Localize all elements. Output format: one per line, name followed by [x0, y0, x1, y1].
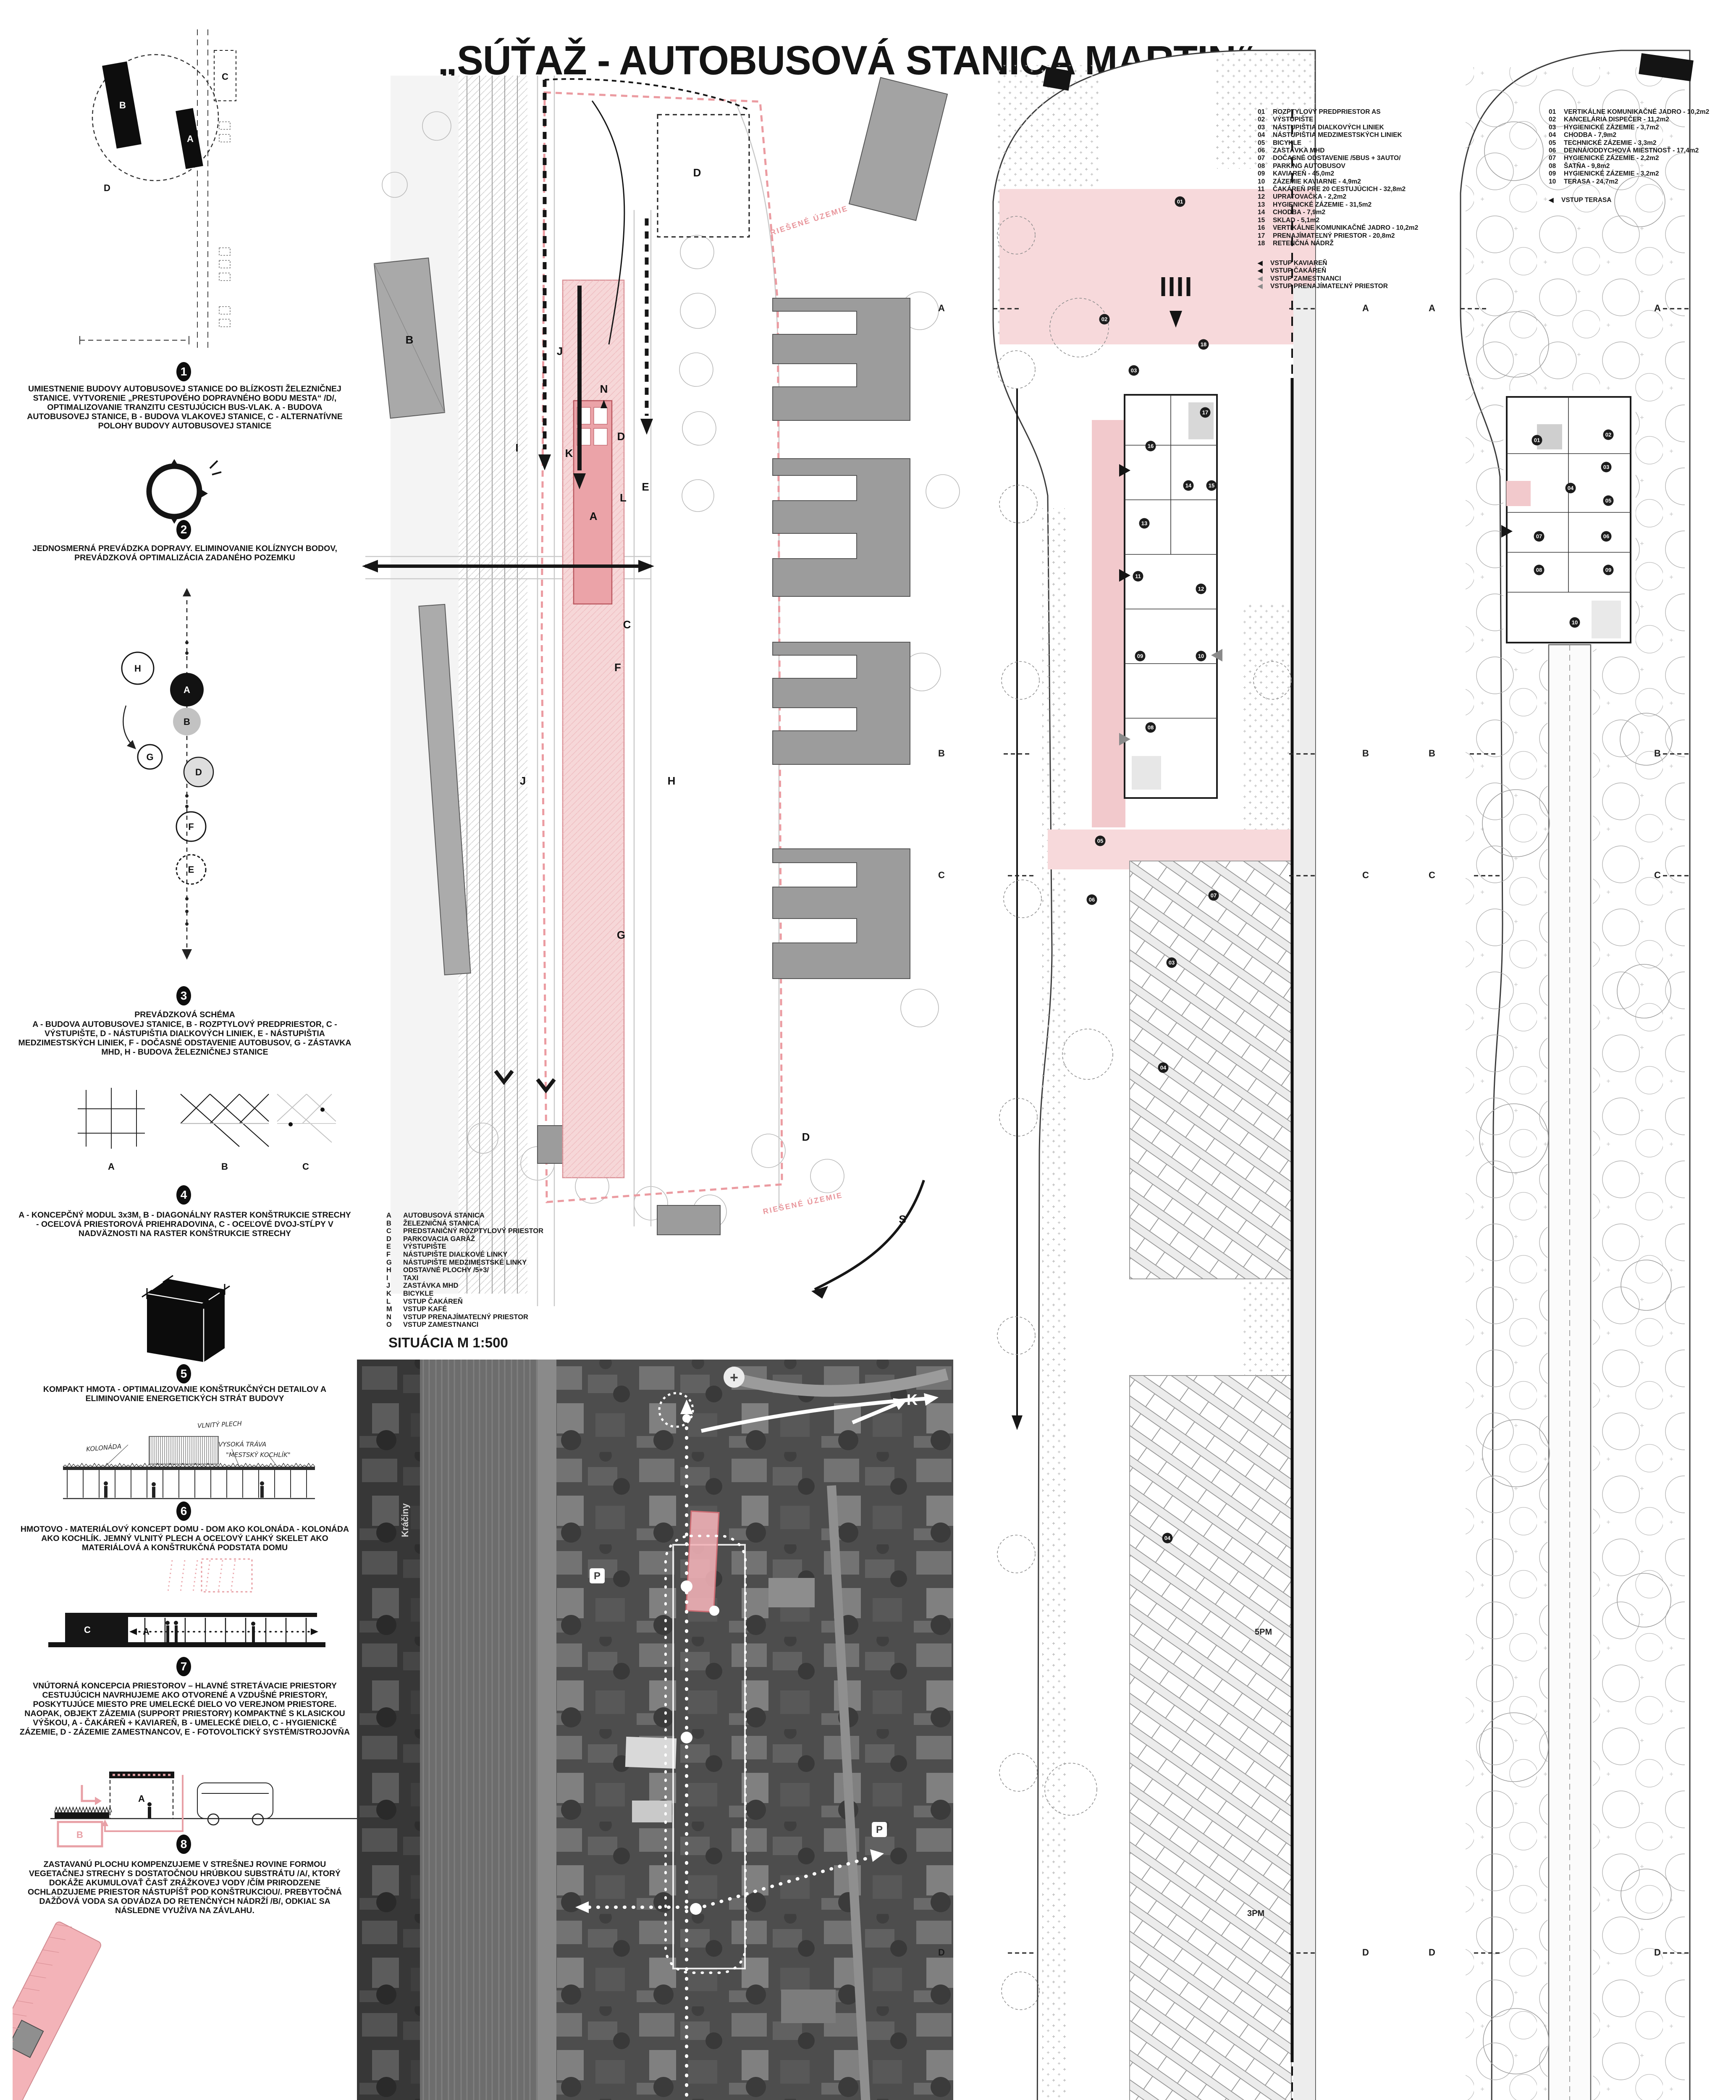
- legend-key: D: [386, 1235, 403, 1243]
- legend-value: DENNÁ/ODDYCHOVÁ MIESTNOSŤ - 17,4m2: [1564, 147, 1699, 155]
- concept-text-5: KOMPAKT HMOTA - OPTIMALIZOVANIE KONŠTRUK…: [17, 1385, 353, 1403]
- svg-text:08: 08: [1536, 567, 1542, 573]
- plan1-legend-row: 08PARKING AUTOBUSOV: [1258, 163, 1418, 170]
- plan-letter: L: [620, 491, 627, 504]
- svg-text:G: G: [146, 752, 153, 762]
- section-marker-B: B: [938, 748, 945, 759]
- legend-key: I: [386, 1274, 403, 1282]
- legend-key: H: [386, 1266, 403, 1274]
- svg-text:D: D: [195, 767, 202, 777]
- legend-value: PARKING AUTOBUSOV: [1273, 163, 1345, 170]
- legend-value: CHODBA - 7,9m2: [1564, 131, 1616, 139]
- plan1-legend-row: 02VÝSTUPIŠTE: [1258, 116, 1418, 123]
- plan2-legend-row: 03HYGIENICKÉ ZÁZEMIE - 3,7m2: [1549, 124, 1709, 131]
- plan-letter: N: [600, 383, 608, 395]
- legend-value: HYGIENICKÉ ZÁZEMIE - 3,7m2: [1564, 124, 1659, 131]
- site-plan-drawing: D BIJKDEALCFJGHDSN: [357, 50, 966, 1357]
- section-marker-A: A: [1654, 303, 1661, 314]
- site-legend-row: CPREDSTANIČNÝ ROZPTYLOVÝ PRIESTOR: [386, 1227, 543, 1235]
- svg-text:P: P: [876, 1824, 883, 1835]
- svg-text:01: 01: [1177, 199, 1183, 205]
- legend-value: RETENČNÁ NÁDRŽ: [1273, 240, 1334, 247]
- svg-text:D: D: [693, 166, 701, 179]
- legend-key: 05: [1549, 139, 1564, 147]
- svg-text:16: 16: [1148, 443, 1154, 449]
- site-legend-row: HODSTAVNÉ PLOCHY /5+3/: [386, 1266, 543, 1274]
- plan-letter: I: [515, 441, 518, 454]
- plan-letter: B: [406, 333, 414, 346]
- plan2-legend-row: 08ŠATŇA - 9,8m2: [1549, 163, 1709, 170]
- legend-key: 12: [1258, 193, 1273, 201]
- section-marker-A: A: [1362, 303, 1369, 314]
- plan1-legend-row: 11ČAKÁREŇ PRE 20 CESTUJÚCICH - 32,8m2: [1258, 186, 1418, 193]
- plan1-entrance-row: ◀VSTUP ČAKÁREŇ: [1258, 267, 1388, 275]
- svg-text:03: 03: [1603, 464, 1609, 470]
- site-legend-row: NVSTUP PRENAJÍMATEĽNÝ PRIESTOR: [386, 1313, 543, 1321]
- legend-value: VSTUP ZAMESTNANCI: [1270, 275, 1341, 283]
- svg-text:E: E: [188, 864, 194, 875]
- svg-text:14: 14: [1185, 483, 1192, 489]
- plan-letter: D: [617, 430, 625, 443]
- plan1-note-3pm: 3PM: [1247, 1909, 1264, 1918]
- site-plan-title: SITUÁCIA M 1:500: [388, 1335, 508, 1351]
- legend-value: SKLAD - 5,1m2: [1273, 217, 1319, 224]
- concept-diagram-2: [126, 451, 227, 531]
- concept-text-6: HMOTOVO - MATERIÁLOVÝ KONCEPT DOMU - DOM…: [17, 1525, 353, 1552]
- legend-value: VERTIKÁLNE KOMUNIKAČNÉ JADRO - 10,2m2: [1273, 224, 1418, 232]
- legend-value: VÝSTUPIŠTE: [1273, 116, 1313, 123]
- legend-value: ZÁZEMIE KAVIARNE - 4,9m2: [1273, 178, 1361, 186]
- entrance-arrow-icon: ◀: [1258, 267, 1270, 275]
- plan-letter: J: [557, 345, 563, 357]
- site-legend-row: LVSTUP ČAKÁREŇ: [386, 1298, 543, 1306]
- svg-text:13: 13: [1141, 520, 1147, 527]
- site-legend-row: FNÁSTUPIŠTE DIAĽKOVÉ LINKY: [386, 1251, 543, 1259]
- legend-value: TERASA - 24,7m2: [1564, 178, 1618, 186]
- plan-letter: D: [802, 1131, 810, 1143]
- svg-text:P: P: [594, 1570, 601, 1582]
- site-legend-row: EVÝSTUPIŠTE: [386, 1243, 543, 1251]
- concept-number-2: 2: [176, 520, 191, 539]
- legend-key: E: [386, 1243, 403, 1251]
- aerial-photo: P P + K: [357, 1360, 953, 2100]
- site-legend-row: JZASTÁVKA MHD: [386, 1282, 543, 1290]
- svg-text:04: 04: [1568, 485, 1574, 491]
- svg-text:04: 04: [1164, 1535, 1171, 1541]
- legend-key: 03: [1258, 124, 1273, 131]
- legend-key: N: [386, 1313, 403, 1321]
- plan1-legend-row: 16VERTIKÁLNE KOMUNIKAČNÉ JADRO - 10,2m2: [1258, 224, 1418, 232]
- section-marker-B: B: [1362, 748, 1369, 759]
- legend-value: PRENAJÍMATEĽNÝ PRIESTOR - 20,8m2: [1273, 232, 1395, 240]
- concept-diagram-6: [42, 1420, 336, 1510]
- concept-text-7: VNÚTORNÁ KONCEPCIA PRIESTOROV – HLAVNÉ S…: [17, 1681, 353, 1737]
- svg-text:K: K: [907, 1391, 918, 1408]
- entrance-arrow-icon: ◀: [1258, 283, 1270, 290]
- svg-text:+: +: [730, 1370, 738, 1386]
- site-legend-row: DPARKOVACIA GARÁŽ: [386, 1235, 543, 1243]
- plan2-legend-row: 10TERASA - 24,7m2: [1549, 178, 1709, 186]
- svg-text:06: 06: [1603, 533, 1609, 540]
- legend-value: PARKOVACIA GARÁŽ: [403, 1235, 475, 1243]
- plan2-entrance-row: ◀VSTUP TERASA: [1549, 197, 1611, 204]
- legend-key: G: [386, 1259, 403, 1267]
- legend-key: 08: [1549, 163, 1564, 170]
- legend-key: 09: [1549, 170, 1564, 178]
- site-legend-row: OVSTUP ZAMESTNANCI: [386, 1321, 543, 1329]
- plan1-legend-row: 15SKLAD - 5,1m2: [1258, 217, 1418, 224]
- legend-value: VSTUP KAVIAREŇ: [1270, 260, 1327, 267]
- svg-text:D: D: [104, 183, 110, 193]
- concept-number-6: 6: [176, 1501, 191, 1521]
- legend-value: HYGIENICKÉ ZÁZEMIE - 3,2m2: [1564, 170, 1659, 178]
- site-legend-row: ITAXI: [386, 1274, 543, 1282]
- section-marker-D: D: [1362, 1947, 1369, 1958]
- section-marker-D: D: [938, 1947, 945, 1958]
- legend-value: DOČASNÉ ODSTAVENIE /5BUS + 3AUTO/: [1273, 155, 1400, 162]
- legend-key: 18: [1258, 240, 1273, 247]
- legend-key: O: [386, 1321, 403, 1329]
- section-marker-C: C: [1429, 870, 1435, 881]
- plan1-note-5pm: 5PM: [1255, 1627, 1272, 1637]
- legend-value: NÁSTUPIŠTIA DIAĽKOVÝCH LINIEK: [1273, 124, 1384, 131]
- legend-key: J: [386, 1282, 403, 1290]
- plan1-legend-row: 18RETENČNÁ NÁDRŽ: [1258, 240, 1418, 247]
- legend-key: L: [386, 1298, 403, 1306]
- plan1-entrances: ◀VSTUP KAVIAREŇ◀VSTUP ČAKÁREŇ◀VSTUP ZAME…: [1258, 260, 1388, 291]
- competition-board: „SÚŤAŽ - AUTOBUSOVÁ STANICA MARTIN“ B A …: [0, 0, 1736, 2100]
- svg-text:A: A: [108, 1161, 115, 1172]
- legend-value: TECHNICKÉ ZÁZEMIE - 3,3m2: [1564, 139, 1656, 147]
- svg-text:06: 06: [1089, 897, 1095, 903]
- plan-letter: E: [642, 480, 649, 493]
- svg-text:12: 12: [1198, 586, 1204, 592]
- svg-text:B: B: [221, 1161, 228, 1172]
- legend-value: VERTIKÁLNE KOMUNIKAČNÉ JADRO - 10,2m2: [1564, 108, 1709, 116]
- plan1-legend-row: 14CHODBA - 7,9m2: [1258, 209, 1418, 216]
- site-legend-row: GNÁSTUPIŠTE MEDZIMESTSKÉ LINKY: [386, 1259, 543, 1267]
- concept-text-3: A - BUDOVA AUTOBUSOVEJ STANICE, B - ROZP…: [17, 1020, 353, 1057]
- legend-value: VSTUP ZAMESTNANCI: [403, 1321, 478, 1329]
- legend-value: VSTUP TERASA: [1561, 197, 1611, 204]
- svg-text:A: A: [138, 1793, 145, 1804]
- legend-value: ŽELEZNIČNÁ STANICA: [403, 1220, 479, 1228]
- section-marker-A: A: [938, 303, 945, 314]
- legend-value: NÁSTUPIŠTE DIAĽKOVÉ LINKY: [403, 1251, 507, 1259]
- svg-text:C: C: [302, 1161, 309, 1172]
- plan2-legend: 01VERTIKÁLNE KOMUNIKAČNÉ JADRO - 10,2m20…: [1549, 108, 1709, 186]
- legend-value: ROZPTYLOVÝ PREDPRIESTOR AS: [1273, 108, 1381, 116]
- plan1-entrance-row: ◀VSTUP KAVIAREŇ: [1258, 260, 1388, 267]
- legend-value: NÁSTUPIŠTE MEDZIMESTSKÉ LINKY: [403, 1259, 527, 1267]
- svg-text:11: 11: [1135, 573, 1141, 580]
- legend-value: HYGIENICKÉ ZÁZEMIE - 31,5m2: [1273, 201, 1371, 209]
- concept-number-8: 8: [176, 1835, 191, 1854]
- svg-text:B: B: [119, 100, 126, 110]
- concept-text-4: A - KONCEPČNÝ MODUL 3x3M, B - DIAGONÁLNY…: [17, 1210, 353, 1238]
- svg-text:02: 02: [1605, 432, 1611, 438]
- svg-text:07: 07: [1536, 533, 1542, 540]
- section-marker-B: B: [1654, 748, 1661, 759]
- legend-value: ZASTÁVKA MHD: [1273, 147, 1324, 155]
- site-legend-row: AAUTOBUSOVÁ STANICA: [386, 1212, 543, 1220]
- concept-text-2: JEDNOSMERNÁ PREVÁDZKA DOPRAVY. ELIMINOVA…: [17, 544, 353, 562]
- plan1-entrance-row: ◀VSTUP ZAMESTNANCI: [1258, 275, 1388, 283]
- svg-text:08: 08: [1148, 724, 1154, 731]
- svg-text:F: F: [188, 822, 194, 832]
- legend-value: UPRATOVAČKA - 2,2m2: [1273, 193, 1346, 201]
- concept-text-8: ZASTAVANÚ PLOCHU KOMPENZUJEME V STREŠNEJ…: [17, 1860, 353, 1915]
- legend-value: ŠATŇA - 9,8m2: [1564, 163, 1610, 170]
- legend-value: VSTUP KAFÉ: [403, 1305, 447, 1313]
- entrance-arrow-icon: ◀: [1258, 260, 1270, 267]
- legend-value: ČAKÁREŇ PRE 20 CESTUJÚCICH - 32,8m2: [1273, 186, 1406, 193]
- plan-2np-drawing: 01020304050607080910: [1411, 25, 1736, 2100]
- svg-text:10: 10: [1198, 653, 1204, 659]
- legend-key: M: [386, 1305, 403, 1313]
- plan1-legend-row: 09KAVIAREŇ - 45,0m2: [1258, 170, 1418, 178]
- legend-key: 13: [1258, 201, 1273, 209]
- svg-text:04: 04: [1160, 1065, 1167, 1071]
- legend-key: 17: [1258, 232, 1273, 240]
- legend-value: VSTUP PRENAJÍMATEĽNÝ PRIESTOR: [1270, 283, 1388, 290]
- svg-text:C: C: [222, 71, 228, 82]
- section-marker-B: B: [1429, 748, 1435, 759]
- legend-key: 03: [1549, 124, 1564, 131]
- legend-value: PREDSTANIČNÝ ROZPTYLOVÝ PRIESTOR: [403, 1227, 543, 1235]
- legend-key: 04: [1258, 131, 1273, 139]
- svg-text:03: 03: [1131, 367, 1137, 374]
- svg-text:07: 07: [1211, 892, 1217, 899]
- plan1-entrance-row: ◀VSTUP PRENAJÍMATEĽNÝ PRIESTOR: [1258, 283, 1388, 290]
- entrance-arrow-icon: ◀: [1549, 197, 1561, 204]
- street-label-kraciny: Kráčiny: [400, 1503, 411, 1537]
- legend-key: 07: [1549, 155, 1564, 162]
- svg-text:B: B: [76, 1830, 83, 1840]
- legend-key: 07: [1258, 155, 1273, 162]
- plan1-legend-row: 07DOČASNÉ ODSTAVENIE /5BUS + 3AUTO/: [1258, 155, 1418, 162]
- concept-diagram-3: H A B G D F E: [101, 580, 277, 974]
- svg-text:A: A: [187, 134, 194, 144]
- concept-number-4: 4: [176, 1185, 191, 1205]
- plan1-legend-row: 05BICYKLE: [1258, 139, 1418, 147]
- concept-number-3: 3: [176, 986, 191, 1005]
- legend-key: 06: [1258, 147, 1273, 155]
- legend-value: BICYKLE: [1273, 139, 1301, 147]
- legend-key: 11: [1258, 186, 1273, 193]
- legend-key: 02: [1258, 116, 1273, 123]
- legend-value: VSTUP ČAKÁREŇ: [403, 1298, 463, 1306]
- plan-letter: S: [899, 1213, 906, 1226]
- section-marker-D: D: [1429, 1947, 1435, 1958]
- svg-text:B: B: [184, 717, 190, 727]
- concept-text-1: UMIESTNENIE BUDOVY AUTOBUSOVEJ STANICE D…: [17, 384, 353, 430]
- legend-key: C: [386, 1227, 403, 1235]
- legend-key: 02: [1549, 116, 1564, 123]
- svg-text:05: 05: [1097, 838, 1103, 844]
- legend-key: 14: [1258, 209, 1273, 216]
- svg-text:15: 15: [1209, 483, 1214, 489]
- plan1-legend-row: 01ROZPTYLOVÝ PREDPRIESTOR AS: [1258, 108, 1418, 116]
- plan2-entrances: ◀VSTUP TERASA: [1549, 197, 1611, 204]
- section-marker-A: A: [1429, 303, 1435, 314]
- legend-value: KANCELÁRIA DISPEČER - 11,2m2: [1564, 116, 1669, 123]
- svg-text:09: 09: [1605, 567, 1611, 573]
- legend-value: VSTUP PRENAJÍMATEĽNÝ PRIESTOR: [403, 1313, 528, 1321]
- svg-text:02: 02: [1101, 316, 1107, 323]
- plan1-legend-row: 13HYGIENICKÉ ZÁZEMIE - 31,5m2: [1258, 201, 1418, 209]
- svg-text:10: 10: [1572, 619, 1578, 626]
- plan1-legend-row: 12UPRATOVAČKA - 2,2m2: [1258, 193, 1418, 201]
- plan1-legend-row: 06ZASTÁVKA MHD: [1258, 147, 1418, 155]
- plan1-legend-row: 03NÁSTUPIŠTIA DIAĽKOVÝCH LINIEK: [1258, 124, 1418, 131]
- plan-letter: G: [617, 929, 625, 941]
- section-marker-C: C: [1654, 870, 1661, 881]
- svg-text:05: 05: [1605, 498, 1611, 504]
- plan2-legend-row: 04CHODBA - 7,9m2: [1549, 131, 1709, 139]
- legend-value: NÁSTUPIŠTIA MEDZIMESTSKÝCH LINIEK: [1273, 131, 1402, 139]
- legend-value: BICYKLE: [403, 1290, 433, 1298]
- svg-text:C: C: [84, 1625, 91, 1635]
- site-legend-row: BŽELEZNIČNÁ STANICA: [386, 1220, 543, 1228]
- legend-key: 09: [1258, 170, 1273, 178]
- concept-diagram-1: B A C D: [29, 13, 248, 365]
- plan-letter: F: [614, 661, 621, 674]
- section-marker-C: C: [1362, 870, 1369, 881]
- legend-key: A: [386, 1212, 403, 1220]
- legend-key: F: [386, 1251, 403, 1259]
- plan-letter: A: [590, 510, 598, 522]
- legend-value: VSTUP ČAKÁREŇ: [1270, 267, 1326, 275]
- legend-key: 01: [1549, 108, 1564, 116]
- concept-diagram-9: [13, 1915, 323, 2100]
- plan-letter: H: [668, 774, 676, 787]
- legend-key: K: [386, 1290, 403, 1298]
- concept-diagram-7: C A: [42, 1554, 336, 1653]
- concept-diagram-4: A B C: [42, 1084, 336, 1182]
- svg-text:01: 01: [1534, 437, 1540, 444]
- legend-key: 08: [1258, 163, 1273, 170]
- svg-text:A: A: [143, 1626, 149, 1637]
- plan-1np-drawing: 0102180317161415131112091008050607030404…: [953, 25, 1405, 2100]
- plan1-legend: 01ROZPTYLOVÝ PREDPRIESTOR AS02VÝSTUPIŠTE…: [1258, 108, 1418, 247]
- legend-key: 06: [1549, 147, 1564, 155]
- concept-number-1: 1: [176, 362, 191, 381]
- concept-number-5: 5: [176, 1364, 191, 1383]
- entrance-arrow-icon: ◀: [1258, 275, 1270, 283]
- svg-text:18: 18: [1201, 341, 1206, 348]
- plan2-legend-row: 05TECHNICKÉ ZÁZEMIE - 3,3m2: [1549, 139, 1709, 147]
- concept-diagram-5: [118, 1254, 252, 1367]
- plan-letter: K: [565, 447, 573, 459]
- sketch-annotation-vysoka-trava: VYSOKÁ TRÁVA: [218, 1441, 266, 1448]
- plan1-legend-row: 17PRENAJÍMATEĽNÝ PRIESTOR - 20,8m2: [1258, 232, 1418, 240]
- legend-value: ODSTAVNÉ PLOCHY /5+3/: [403, 1266, 489, 1274]
- site-legend-row: MVSTUP KAFÉ: [386, 1305, 543, 1313]
- svg-text:A: A: [184, 685, 190, 695]
- plan2-legend-row: 09HYGIENICKÉ ZÁZEMIE - 3,2m2: [1549, 170, 1709, 178]
- svg-text:17: 17: [1202, 409, 1208, 416]
- section-marker-C: C: [938, 870, 945, 881]
- legend-key: 01: [1258, 108, 1273, 116]
- plan-letter: C: [623, 618, 631, 631]
- concept-diagram-8: A B: [42, 1768, 370, 1856]
- legend-value: VÝSTUPIŠTE: [403, 1243, 446, 1251]
- section-marker-D: D: [1654, 1947, 1661, 1958]
- concept-title-3: PREVÁDZKOVÁ SCHÉMA: [17, 1010, 353, 1019]
- legend-key: B: [386, 1220, 403, 1228]
- plan-letter: J: [520, 774, 526, 787]
- legend-key: 05: [1258, 139, 1273, 147]
- plan2-legend-row: 01VERTIKÁLNE KOMUNIKAČNÉ JADRO - 10,2m2: [1549, 108, 1709, 116]
- legend-value: HYGIENICKÉ ZÁZEMIE - 2,2m2: [1564, 155, 1659, 162]
- legend-key: 15: [1258, 217, 1273, 224]
- legend-value: AUTOBUSOVÁ STANICA: [403, 1212, 485, 1220]
- plan2-legend-row: 06DENNÁ/ODDYCHOVÁ MIESTNOSŤ - 17,4m2: [1549, 147, 1709, 155]
- plan1-legend-row: 04NÁSTUPIŠTIA MEDZIMESTSKÝCH LINIEK: [1258, 131, 1418, 139]
- legend-key: 16: [1258, 224, 1273, 232]
- legend-value: CHODBA - 7,9m2: [1273, 209, 1325, 216]
- site-legend-row: KBICYKLE: [386, 1290, 543, 1298]
- legend-value: ZASTÁVKA MHD: [403, 1282, 458, 1290]
- concept-number-7: 7: [176, 1657, 191, 1676]
- svg-text:H: H: [134, 663, 141, 674]
- legend-key: 10: [1258, 178, 1273, 186]
- plan1-legend-row: 10ZÁZEMIE KAVIARNE - 4,9m2: [1258, 178, 1418, 186]
- plan2-legend-row: 07HYGIENICKÉ ZÁZEMIE - 2,2m2: [1549, 155, 1709, 162]
- svg-text:03: 03: [1169, 960, 1175, 966]
- legend-key: 10: [1549, 178, 1564, 186]
- legend-value: KAVIAREŇ - 45,0m2: [1273, 170, 1334, 178]
- legend-value: TAXI: [403, 1274, 418, 1282]
- svg-text:09: 09: [1137, 653, 1143, 659]
- plan2-legend-row: 02KANCELÁRIA DISPEČER - 11,2m2: [1549, 116, 1709, 123]
- legend-key: 04: [1549, 131, 1564, 139]
- sketch-annotation-mestsky-kochlik: "MESTSKÝ KOCHLÍK": [226, 1451, 291, 1459]
- site-plan-legend: AAUTOBUSOVÁ STANICABŽELEZNIČNÁ STANICACP…: [386, 1212, 543, 1329]
